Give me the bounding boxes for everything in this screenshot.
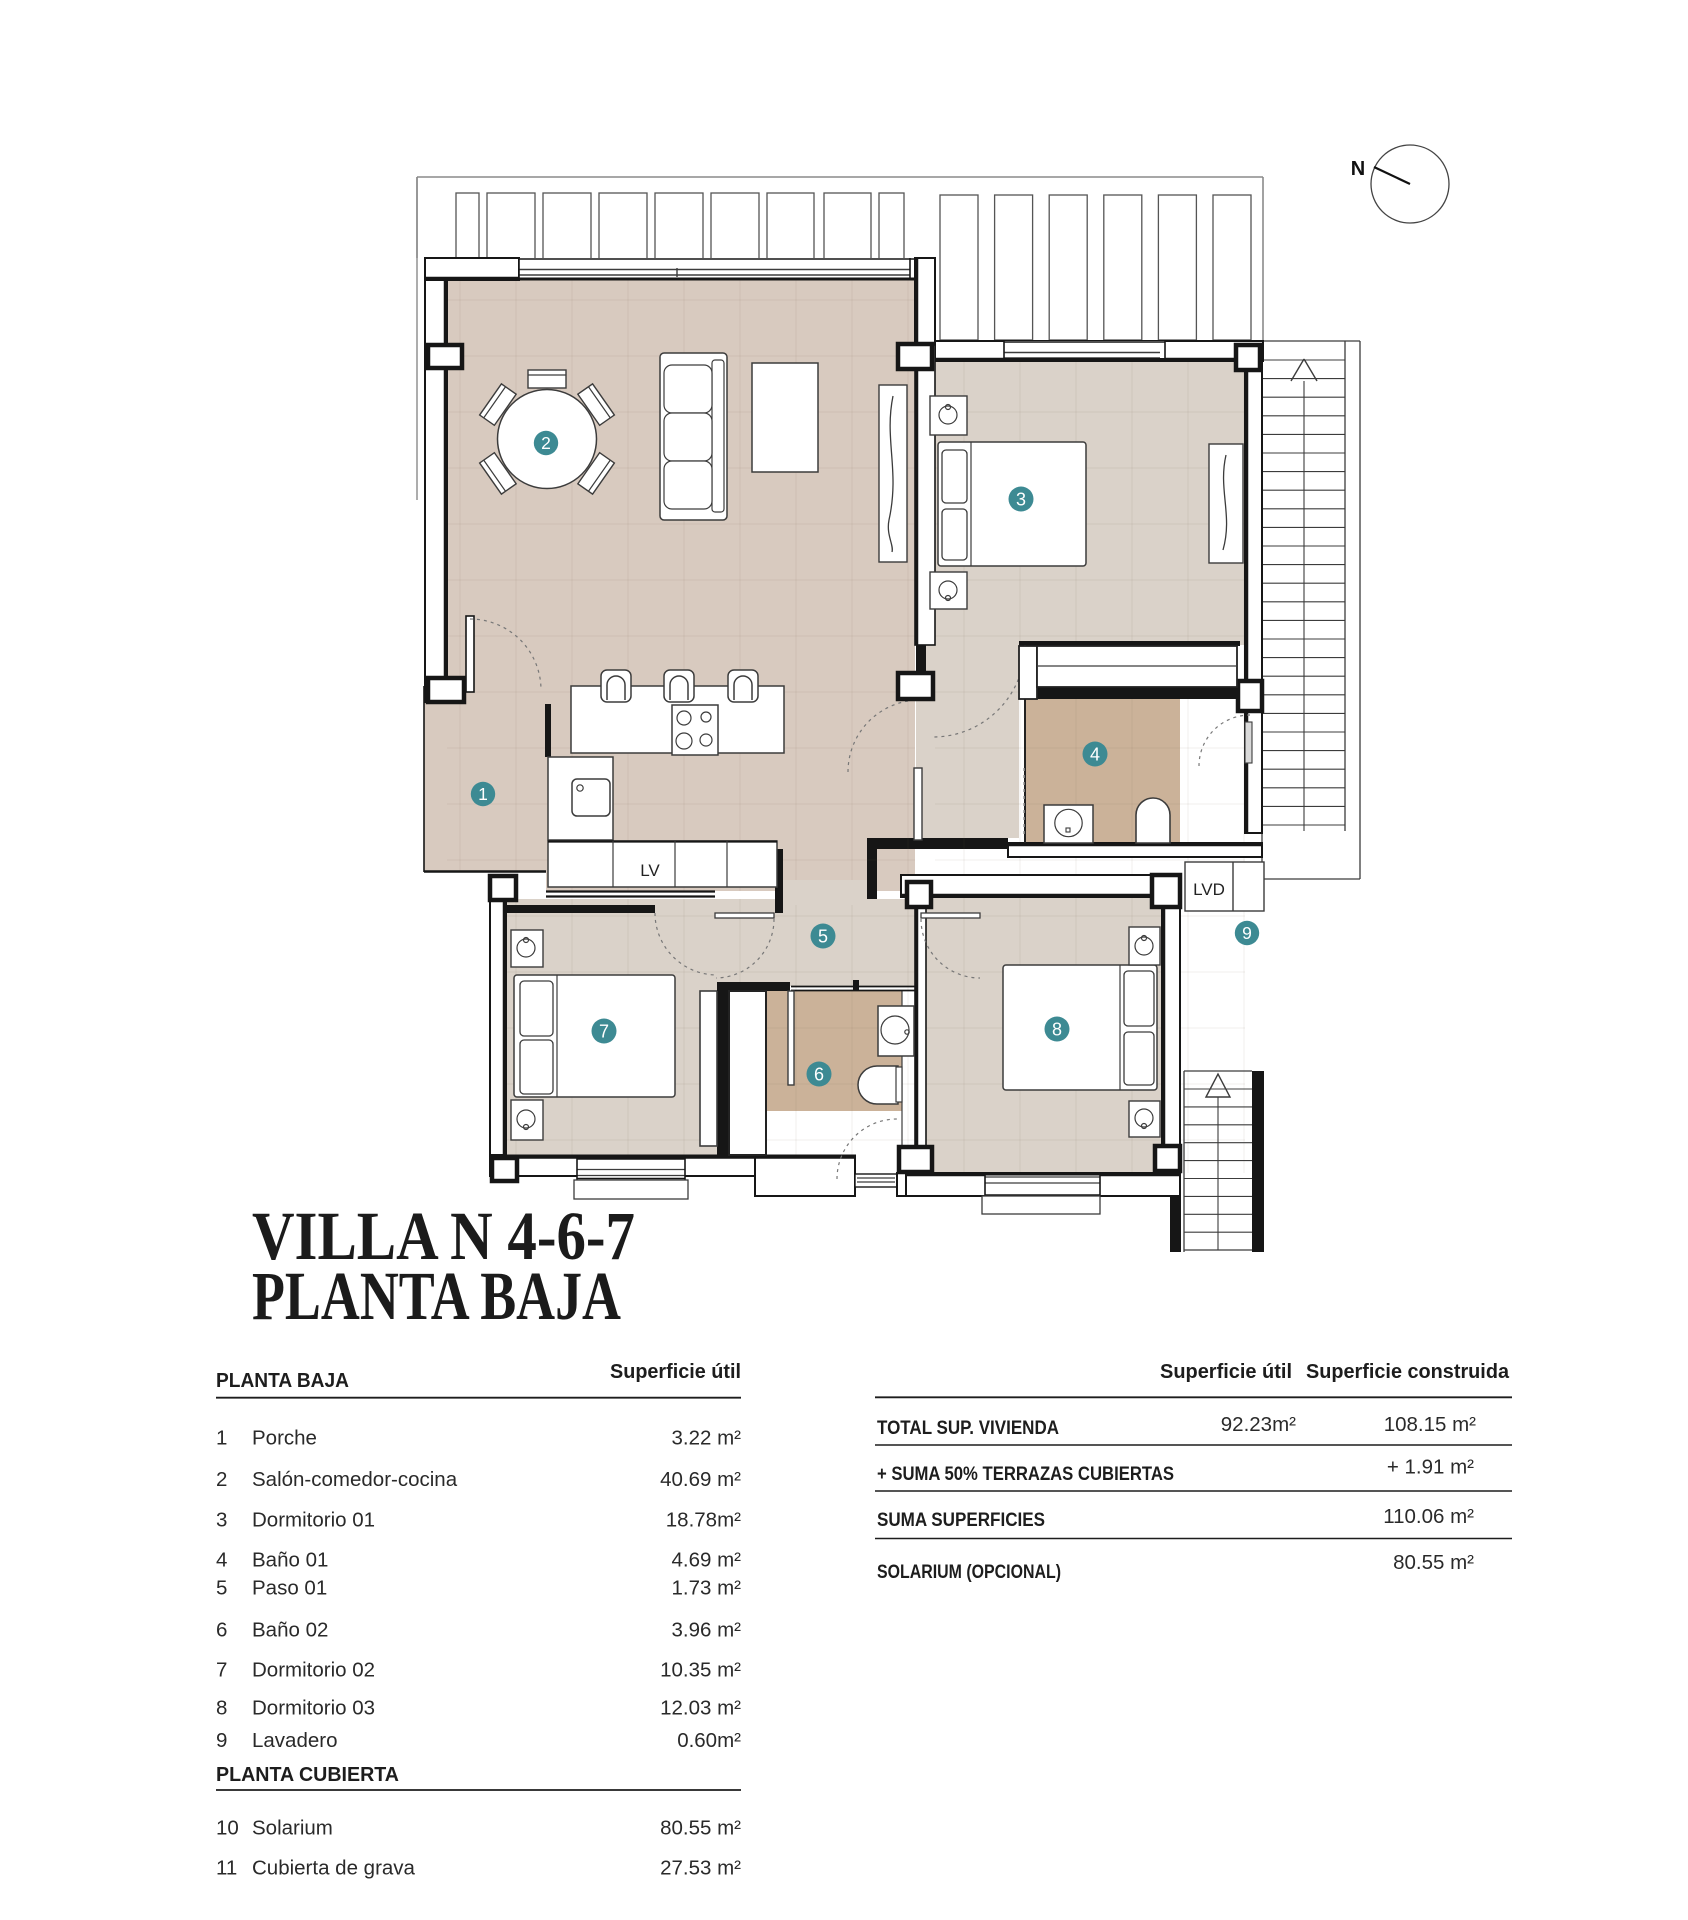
- svg-text:10: 10: [216, 1817, 239, 1840]
- svg-text:7: 7: [599, 1021, 609, 1041]
- svg-text:8: 8: [216, 1697, 227, 1720]
- svg-text:6: 6: [814, 1064, 824, 1084]
- svg-text:10.35 m²: 10.35 m²: [660, 1659, 741, 1682]
- svg-text:4: 4: [216, 1549, 227, 1572]
- svg-text:80.55 m²: 80.55 m²: [660, 1817, 741, 1840]
- svg-text:2: 2: [541, 433, 551, 453]
- svg-text:1: 1: [216, 1427, 227, 1450]
- svg-text:LV: LV: [640, 861, 660, 880]
- svg-text:1: 1: [478, 784, 488, 804]
- svg-text:6: 6: [216, 1619, 227, 1642]
- svg-text:3.96 m²: 3.96 m²: [672, 1619, 742, 1642]
- svg-text:Superficie útil: Superficie útil: [610, 1360, 741, 1383]
- svg-text:8: 8: [1052, 1019, 1062, 1039]
- svg-text:40.69 m²: 40.69 m²: [660, 1468, 741, 1491]
- svg-text:PLANTA BAJA: PLANTA BAJA: [252, 1258, 621, 1334]
- svg-text:Dormitorio 01: Dormitorio 01: [252, 1509, 375, 1532]
- svg-text:TOTAL SUP. VIVIENDA: TOTAL SUP. VIVIENDA: [877, 1418, 1059, 1439]
- svg-text:108.15 m²: 108.15 m²: [1384, 1413, 1476, 1436]
- svg-text:Dormitorio 03: Dormitorio 03: [252, 1697, 375, 1720]
- svg-text:Paso 01: Paso 01: [252, 1577, 327, 1600]
- svg-text:7: 7: [216, 1659, 227, 1682]
- svg-text:9: 9: [216, 1729, 227, 1752]
- svg-text:27.53 m²: 27.53 m²: [660, 1857, 741, 1880]
- svg-text:4.69 m²: 4.69 m²: [672, 1549, 742, 1572]
- svg-text:11: 11: [216, 1857, 237, 1880]
- svg-text:9: 9: [1242, 923, 1252, 943]
- svg-text:4: 4: [1090, 744, 1100, 764]
- svg-text:3.22 m²: 3.22 m²: [672, 1427, 742, 1450]
- svg-text:LVD: LVD: [1193, 880, 1225, 899]
- svg-text:Cubierta de grava: Cubierta de grava: [252, 1857, 416, 1880]
- svg-text:Lavadero: Lavadero: [252, 1729, 337, 1752]
- svg-text:3: 3: [216, 1509, 227, 1532]
- svg-text:PLANTA CUBIERTA: PLANTA CUBIERTA: [216, 1763, 399, 1786]
- svg-text:80.55 m²: 80.55 m²: [1393, 1551, 1474, 1574]
- svg-text:110.06 m²: 110.06 m²: [1383, 1505, 1474, 1528]
- svg-text:2: 2: [216, 1468, 227, 1491]
- svg-text:92.23m²: 92.23m²: [1221, 1413, 1296, 1436]
- svg-text:Dormitorio 02: Dormitorio 02: [252, 1659, 375, 1682]
- svg-text:Superficie construida: Superficie construida: [1306, 1360, 1510, 1383]
- svg-text:Porche: Porche: [252, 1427, 317, 1450]
- svg-text:Baño 02: Baño 02: [252, 1619, 328, 1642]
- svg-text:PLANTA BAJA: PLANTA BAJA: [216, 1369, 349, 1392]
- svg-text:Solarium: Solarium: [252, 1817, 333, 1840]
- svg-text:1.73 m²: 1.73 m²: [672, 1577, 742, 1600]
- svg-text:Baño 01: Baño 01: [252, 1549, 328, 1572]
- svg-text:Salón-comedor-cocina: Salón-comedor-cocina: [252, 1468, 458, 1491]
- svg-text:N: N: [1351, 158, 1365, 180]
- svg-text:SUMA SUPERFICIES: SUMA SUPERFICIES: [877, 1510, 1045, 1531]
- svg-text:SOLARIUM (OPCIONAL): SOLARIUM (OPCIONAL): [877, 1562, 1061, 1583]
- svg-text:+ 1.91 m²: + 1.91 m²: [1387, 1456, 1474, 1479]
- svg-text:5: 5: [216, 1577, 227, 1600]
- svg-text:5: 5: [818, 926, 828, 946]
- svg-text:18.78m²: 18.78m²: [666, 1509, 741, 1532]
- svg-text:3: 3: [1016, 489, 1026, 509]
- svg-text:12.03 m²: 12.03 m²: [660, 1697, 741, 1720]
- svg-text:+ SUMA 50% TERRAZAS CUBIERTAS: + SUMA 50% TERRAZAS CUBIERTAS: [877, 1464, 1174, 1485]
- svg-text:0.60m²: 0.60m²: [677, 1729, 741, 1752]
- svg-text:Superficie útil: Superficie útil: [1160, 1360, 1292, 1383]
